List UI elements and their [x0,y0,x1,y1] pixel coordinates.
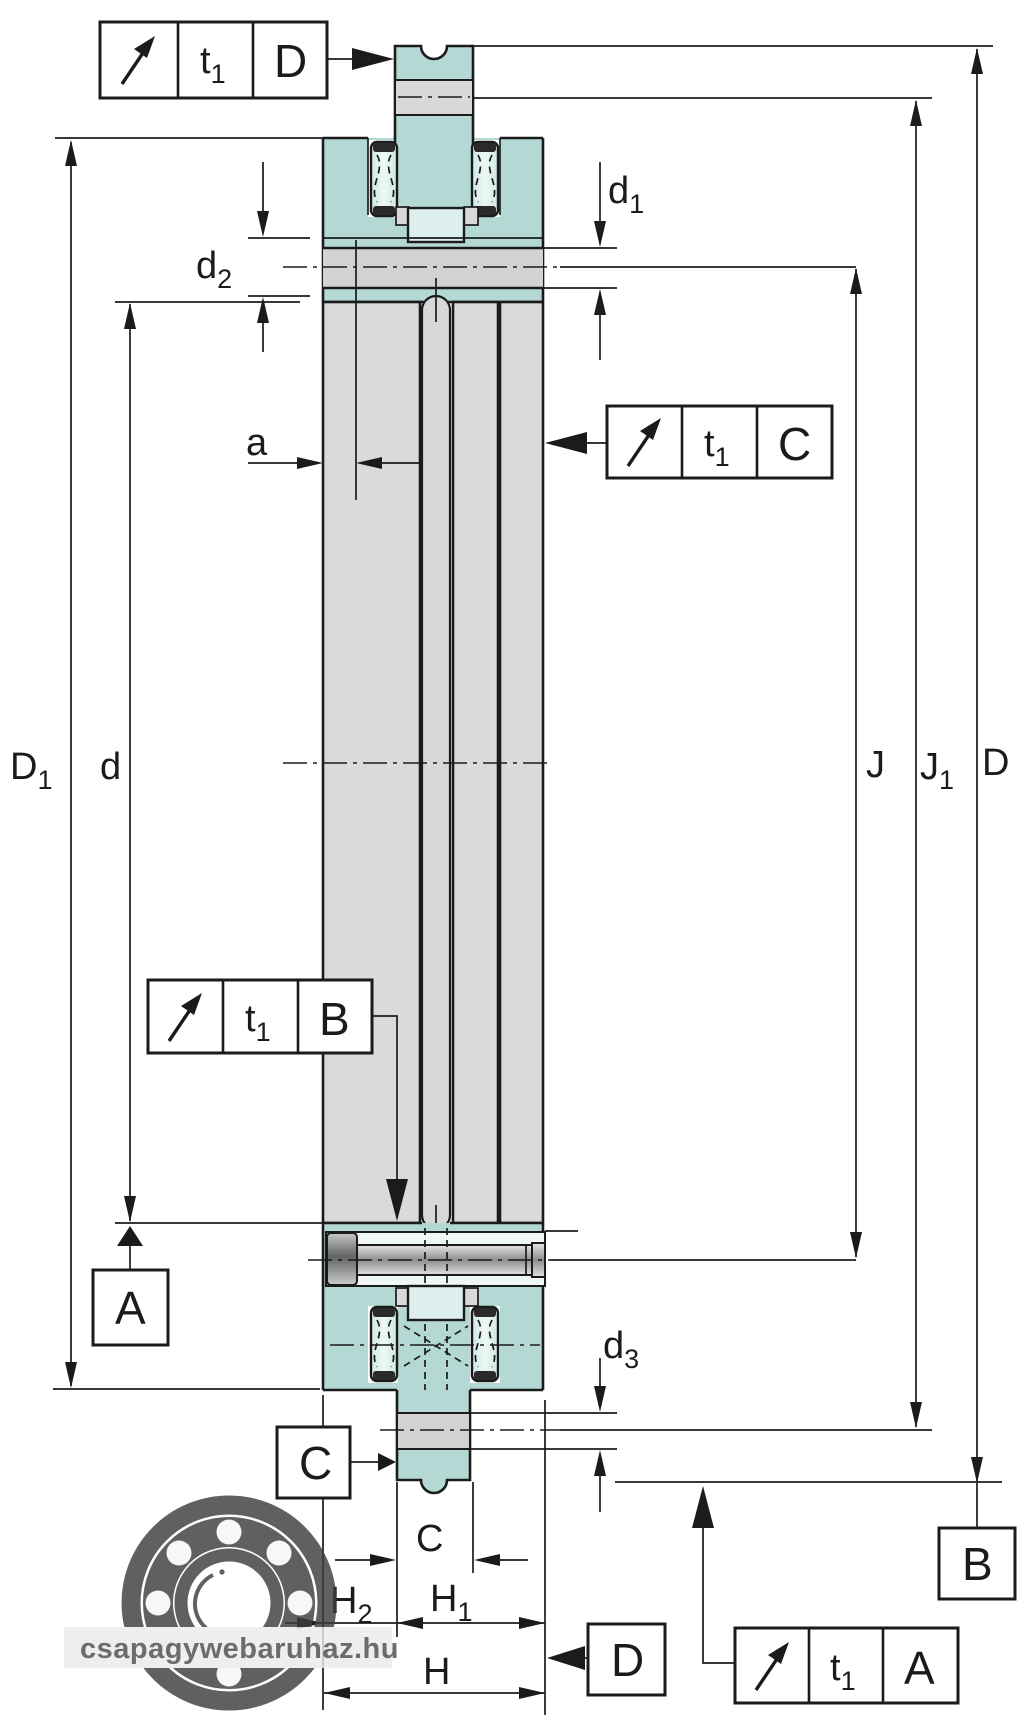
svg-text:d2: d2 [196,245,232,294]
svg-text:H: H [423,1651,450,1693]
svg-text:a: a [246,422,268,464]
datum-D: D [547,1624,665,1695]
dim-D1: D1 [10,140,77,1388]
svg-text:A: A [904,1642,935,1694]
bottom-roller-right [472,1307,498,1381]
svg-text:d3: d3 [603,1325,639,1374]
datum-triangle-icon [117,1226,143,1246]
bearing-drawing-page: D1 d d2 d1 [0,0,1024,1731]
leader-arrow-left-icon [547,1646,585,1670]
dim-d2: d2 [196,162,310,352]
svg-text:B: B [319,993,350,1045]
top-cage [408,208,464,242]
datum-A: A [93,1226,168,1345]
top-roller-right [472,142,498,216]
callout-t1-A: t1 A [692,1486,958,1703]
bearing-logo-icon [131,1505,327,1701]
svg-text:d: d [100,746,121,788]
callout-t1-D: t1 D [100,22,394,98]
dim-d: d [100,303,136,1222]
leader-arrow-up-icon [692,1486,714,1528]
bottom-roller-left [371,1307,397,1381]
svg-text:J: J [866,744,885,786]
svg-text:B: B [962,1538,993,1590]
top-roller-left [371,142,397,216]
dim-d1: d1 [543,162,644,360]
dim-J: J [850,268,885,1258]
bearing-cross-section-drawing: D1 d d2 d1 [0,0,1024,1731]
svg-text:C: C [299,1437,332,1489]
bearing-body [283,46,578,1493]
svg-text:D: D [611,1634,644,1686]
svg-text:C: C [778,418,811,470]
datum-B: B [939,1483,1015,1599]
svg-text:D: D [274,35,307,87]
svg-text:D: D [982,742,1009,784]
leader-arrow-left-icon [545,432,587,454]
leader-arrow-right-icon [378,1453,396,1471]
svg-text:A: A [115,1282,146,1334]
dim-D: D [971,48,1009,1483]
svg-text:J1: J1 [920,746,954,795]
svg-text:d1: d1 [608,170,644,219]
svg-text:C: C [416,1518,443,1560]
watermark-text: csapagywebaruhaz.hu [80,1633,399,1665]
leader-arrow-right-icon [352,48,394,70]
callout-t1-C: t1 C [545,406,832,478]
svg-text:H1: H1 [430,1578,472,1627]
datum-C: C [277,1427,396,1498]
dim-J1: J1 [910,100,954,1428]
bottom-bore-band [397,1413,470,1449]
fixing-bolt [308,1232,550,1286]
top-shaft-block [395,46,473,210]
bottom-cage [408,1286,464,1320]
svg-text:D1: D1 [10,746,52,795]
